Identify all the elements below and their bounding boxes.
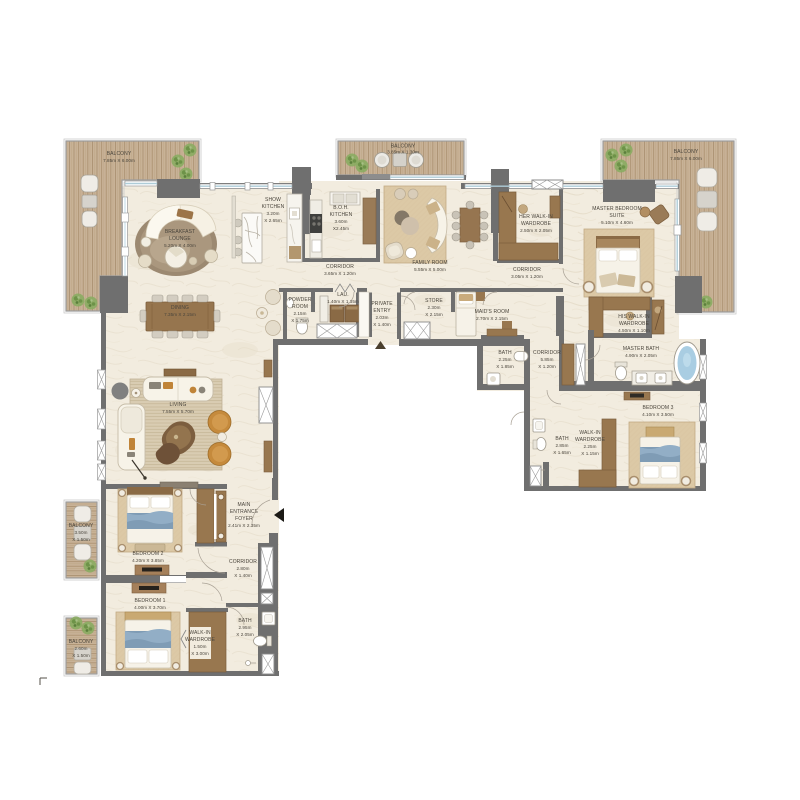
svg-text:7.35m X 2.15m: 7.35m X 2.15m (164, 312, 196, 317)
svg-text:LOUNGE: LOUNGE (169, 236, 191, 242)
svg-text:PRIVATE: PRIVATE (371, 301, 393, 307)
svg-text:MASTER BATH: MASTER BATH (623, 346, 660, 352)
svg-text:X 1.75m: X 1.75m (291, 318, 309, 323)
svg-text:LIVING: LIVING (170, 402, 187, 408)
svg-text:LAU.: LAU. (337, 292, 349, 298)
svg-text:2.85m: 2.85m (555, 443, 568, 448)
svg-text:4.10m X 3.50m: 4.10m X 3.50m (642, 412, 674, 417)
svg-text:FAMILY ROOM: FAMILY ROOM (412, 260, 447, 266)
svg-text:BREAKFAST: BREAKFAST (165, 229, 195, 235)
svg-text:BALCONY: BALCONY (69, 639, 94, 645)
svg-text:X 1.50m: X 1.50m (72, 653, 90, 658)
svg-text:CORRIDOR: CORRIDOR (326, 264, 354, 270)
svg-text:MASTER BEDROOM: MASTER BEDROOM (592, 206, 641, 212)
svg-text:BATH: BATH (238, 618, 252, 624)
svg-text:2.03m: 2.03m (375, 315, 388, 320)
svg-text:DINING: DINING (171, 305, 189, 311)
svg-text:ROOM: ROOM (292, 304, 308, 310)
svg-text:BEDROOM 3: BEDROOM 3 (643, 405, 674, 411)
svg-text:X 2.05m: X 2.05m (236, 632, 254, 637)
svg-text:WARDROBE: WARDROBE (619, 321, 650, 327)
svg-text:5.10m X 4.60m: 5.10m X 4.60m (601, 220, 633, 225)
svg-text:3.20m: 3.20m (266, 211, 279, 216)
svg-text:1.50m: 1.50m (193, 644, 206, 649)
svg-text:2.30m: 2.30m (427, 305, 440, 310)
svg-text:5.85m: 5.85m (540, 357, 553, 362)
svg-text:X 2.15m: X 2.15m (425, 312, 443, 317)
svg-text:KITCHEN: KITCHEN (330, 212, 353, 218)
svg-text:BATH: BATH (498, 350, 512, 356)
svg-text:FOYER: FOYER (235, 516, 253, 522)
svg-text:2.25m: 2.25m (498, 357, 511, 362)
svg-text:CORRIDOR: CORRIDOR (229, 559, 257, 565)
svg-text:3.65m X 1.20m: 3.65m X 1.20m (324, 271, 356, 276)
svg-text:2.50m X 2.05m: 2.50m X 2.05m (520, 228, 552, 233)
svg-text:X 1.50m: X 1.50m (72, 537, 90, 542)
svg-text:KITCHEN: KITCHEN (262, 204, 285, 210)
svg-text:MAID'S ROOM: MAID'S ROOM (475, 309, 510, 315)
svg-text:HIS WALK-IN: HIS WALK-IN (618, 314, 650, 320)
svg-text:POWDER: POWDER (288, 297, 311, 303)
svg-text:X 1.85m: X 1.85m (496, 364, 514, 369)
svg-text:3.60m: 3.60m (334, 219, 347, 224)
svg-text:ENTRY: ENTRY (373, 308, 391, 314)
svg-text:X 3.00m: X 3.00m (191, 651, 209, 656)
svg-text:WARDROBE: WARDROBE (575, 437, 606, 443)
svg-text:BEDROOM 1: BEDROOM 1 (135, 598, 166, 604)
svg-text:CORRIDOR: CORRIDOR (533, 350, 561, 356)
svg-text:STORE: STORE (425, 298, 443, 304)
svg-text:2.60m: 2.60m (74, 646, 87, 651)
svg-text:4.00m X 3.70m: 4.00m X 3.70m (134, 605, 166, 610)
svg-text:4.50m X 1.10m: 4.50m X 1.10m (618, 328, 650, 333)
svg-text:3.85m X 1.30m: 3.85m X 1.30m (387, 150, 419, 155)
svg-text:BATH: BATH (555, 436, 569, 442)
svg-text:7.85m X 6.00m: 7.85m X 6.00m (670, 156, 702, 161)
svg-text:BEDROOM 2: BEDROOM 2 (133, 551, 164, 557)
svg-text:BALCONY: BALCONY (107, 151, 132, 157)
svg-text:BALCONY: BALCONY (69, 523, 94, 529)
svg-text:WARDROBE: WARDROBE (185, 637, 216, 643)
svg-text:2.15m: 2.15m (293, 311, 306, 316)
svg-text:SHOW: SHOW (265, 197, 281, 203)
svg-text:CORRIDOR: CORRIDOR (513, 267, 541, 273)
svg-text:WARDROBE: WARDROBE (521, 221, 552, 227)
svg-text:3.05m X 1.20m: 3.05m X 1.20m (511, 274, 543, 279)
svg-text:X2.45m: X2.45m (333, 226, 349, 231)
svg-text:2.41m X 2.35m: 2.41m X 2.35m (228, 523, 260, 528)
svg-text:5.20m X 4.00m: 5.20m X 4.00m (164, 243, 196, 248)
svg-text:X 2.65m: X 2.65m (264, 218, 282, 223)
svg-text:1.40m X 1.35m: 1.40m X 1.35m (327, 299, 359, 304)
svg-text:BALCONY: BALCONY (674, 149, 699, 155)
svg-text:7.55m X 5.70m: 7.55m X 5.70m (162, 409, 194, 414)
svg-text:HER WALK-IN: HER WALK-IN (519, 214, 553, 220)
svg-text:4.20m X 3.85m: 4.20m X 3.85m (132, 558, 164, 563)
svg-text:X 1.15m: X 1.15m (581, 451, 599, 456)
svg-text:2.95m: 2.95m (238, 625, 251, 630)
svg-text:2.70m X 2.15m: 2.70m X 2.15m (476, 316, 508, 321)
svg-text:X 1.40m: X 1.40m (234, 573, 252, 578)
svg-text:X 1.65m: X 1.65m (553, 450, 571, 455)
svg-text:5.55m X 5.00m: 5.55m X 5.00m (414, 267, 446, 272)
svg-text:4.90m X 2.05m: 4.90m X 2.05m (625, 353, 657, 358)
svg-text:X 1.20m: X 1.20m (538, 364, 556, 369)
svg-text:7.85m X 6.00m: 7.85m X 6.00m (103, 158, 135, 163)
svg-text:WALK-IN: WALK-IN (189, 630, 211, 636)
svg-text:WALK-IN: WALK-IN (579, 430, 601, 436)
svg-text:2.25m: 2.25m (583, 444, 596, 449)
svg-text:SUITE: SUITE (609, 213, 625, 219)
svg-text:2.80m: 2.80m (236, 566, 249, 571)
svg-text:X 1.40m: X 1.40m (373, 322, 391, 327)
svg-text:MAIN: MAIN (238, 502, 251, 508)
svg-text:3.50m: 3.50m (74, 530, 87, 535)
svg-text:B.O.H.: B.O.H. (333, 205, 349, 211)
